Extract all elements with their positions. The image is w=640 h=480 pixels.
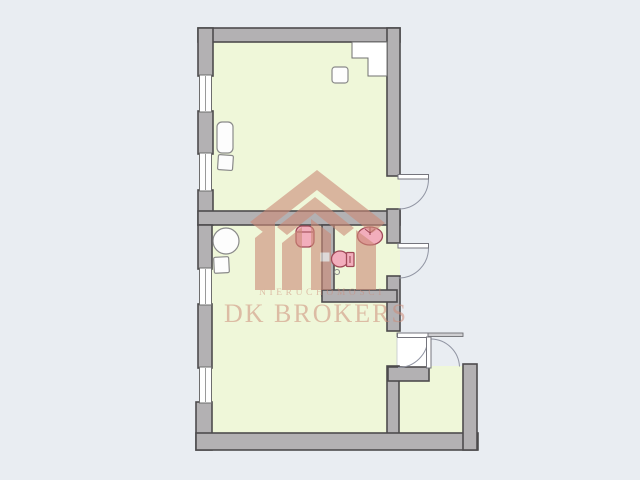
wall-left-segment: [198, 111, 213, 154]
small-room-wall-top: [388, 367, 429, 381]
floorplan-svg: NIERUCHOMOŚCI DK BROKERS: [0, 0, 640, 480]
logo-window: [321, 253, 330, 262]
small-room-wall-right: [463, 364, 477, 450]
door-leaf: [398, 244, 429, 249]
small-room-entry-threshold: [429, 366, 463, 382]
round-table: [213, 228, 239, 254]
wall-bottom: [196, 433, 478, 450]
stool: [214, 257, 230, 274]
door-leaf: [398, 175, 429, 180]
wall-left-segment: [198, 225, 212, 269]
wall-left-segment: [198, 304, 212, 368]
door-threshold: [388, 176, 400, 209]
door-arc: [431, 339, 460, 367]
wall-right-segment: [387, 28, 400, 176]
stool: [217, 155, 233, 171]
porch-swing-zone: [397, 335, 428, 367]
floorplan-image: NIERUCHOMOŚCI DK BROKERS: [0, 0, 640, 480]
sofa: [217, 122, 233, 153]
wall-left-segment: [198, 28, 213, 76]
door-leaf: [427, 337, 432, 368]
wall-top: [198, 28, 400, 42]
watermark-brand: DK BROKERS: [224, 299, 408, 328]
door-arc: [399, 248, 429, 278]
side-table: [332, 67, 348, 83]
watermark-tagline: NIERUCHOMOŚCI: [259, 286, 385, 298]
door-arc: [399, 179, 429, 209]
wall-right-segment: [387, 209, 400, 243]
door-leaf: [398, 333, 429, 338]
